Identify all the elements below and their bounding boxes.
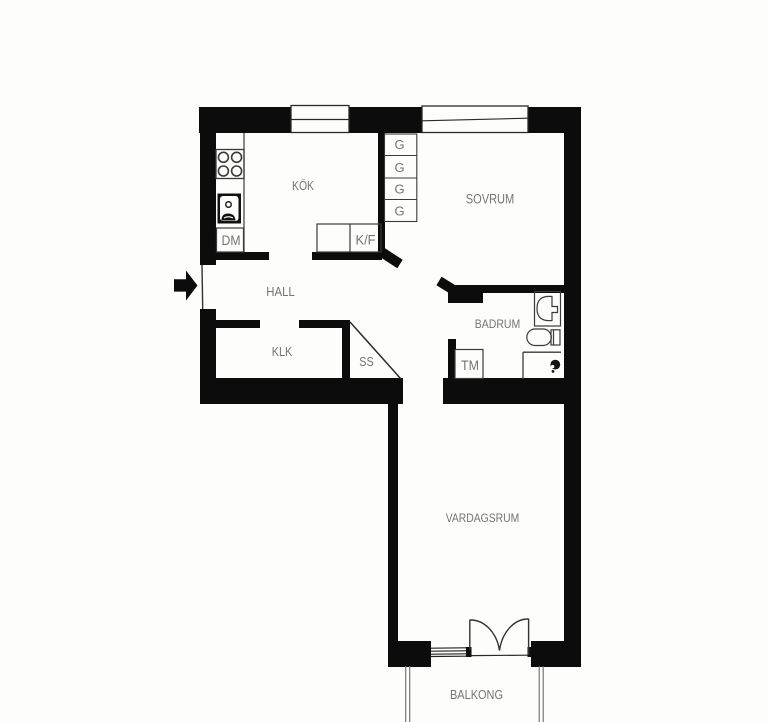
svg-text:G: G <box>394 203 404 218</box>
svg-text:K/F: K/F <box>356 233 376 248</box>
svg-text:BALKONG: BALKONG <box>450 688 503 702</box>
svg-text:TM: TM <box>461 358 479 373</box>
svg-text:HALL: HALL <box>266 284 295 299</box>
svg-text:G: G <box>394 160 404 175</box>
svg-text:SS: SS <box>359 354 374 369</box>
svg-text:BADRUM: BADRUM <box>475 319 521 331</box>
svg-text:SOVRUM: SOVRUM <box>466 192 515 207</box>
svg-text:VARDAGSRUM: VARDAGSRUM <box>446 511 520 525</box>
svg-text:G: G <box>394 137 404 152</box>
svg-text:KÖK: KÖK <box>292 178 314 193</box>
svg-text:KLK: KLK <box>272 344 293 359</box>
svg-text:DM: DM <box>222 233 241 248</box>
svg-text:G: G <box>394 182 404 197</box>
